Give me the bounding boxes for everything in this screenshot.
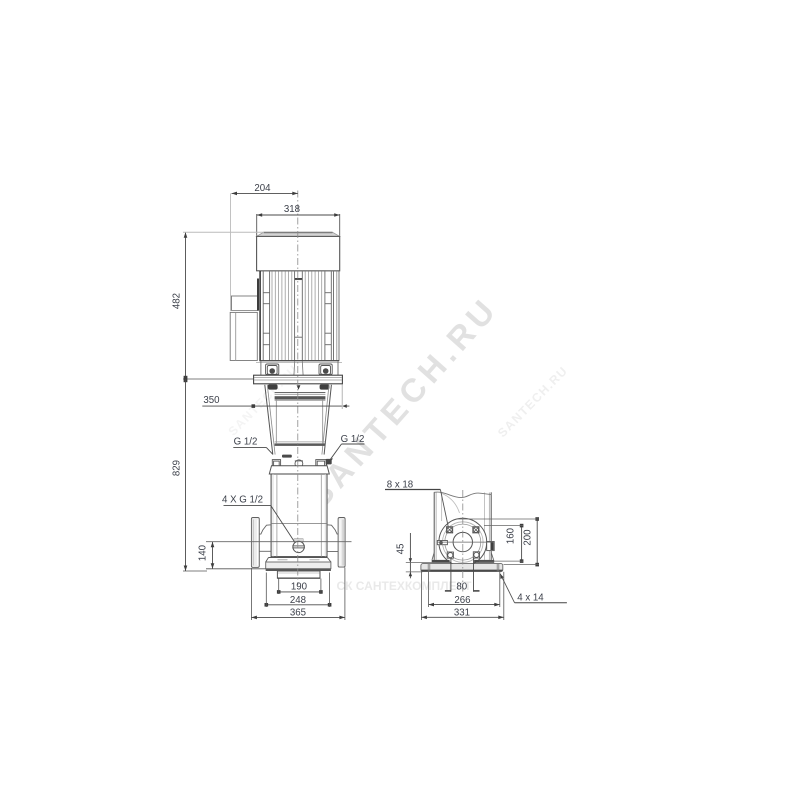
svg-text:200: 200 (523, 529, 534, 546)
svg-text:140: 140 (198, 544, 209, 561)
svg-text:204: 204 (254, 183, 271, 194)
svg-text:318: 318 (284, 204, 300, 215)
svg-text:190: 190 (291, 582, 308, 593)
svg-text:350: 350 (203, 395, 220, 406)
svg-text:СК САНТЕХКОМПЛЕКТ: СК САНТЕХКОМПЛЕКТ (336, 579, 472, 593)
svg-text:80: 80 (456, 581, 467, 592)
svg-text:4 X G 1/2: 4 X G 1/2 (222, 495, 263, 506)
svg-text:365: 365 (290, 607, 306, 618)
svg-text:8 x 18: 8 x 18 (387, 479, 413, 490)
svg-text:G 1/2: G 1/2 (234, 436, 258, 447)
svg-text:45: 45 (396, 544, 407, 555)
svg-text:829: 829 (172, 460, 183, 476)
svg-text:G 1/2: G 1/2 (341, 434, 365, 445)
svg-text:160: 160 (506, 527, 517, 544)
svg-text:482: 482 (172, 293, 183, 309)
svg-text:248: 248 (290, 595, 306, 606)
svg-text:4 x 14: 4 x 14 (517, 592, 544, 603)
